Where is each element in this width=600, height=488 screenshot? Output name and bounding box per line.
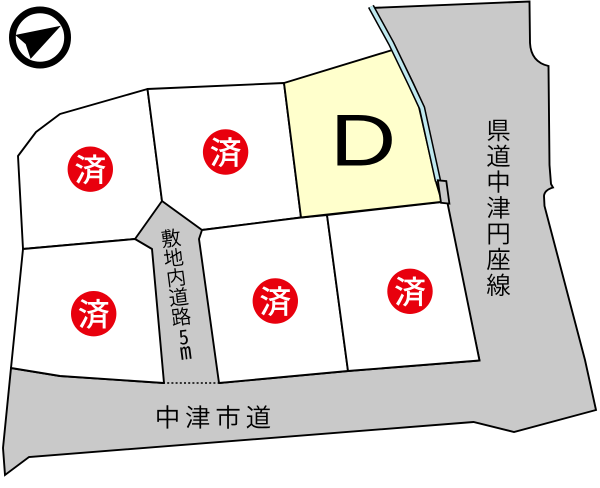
svg-text:D: D <box>330 99 396 181</box>
